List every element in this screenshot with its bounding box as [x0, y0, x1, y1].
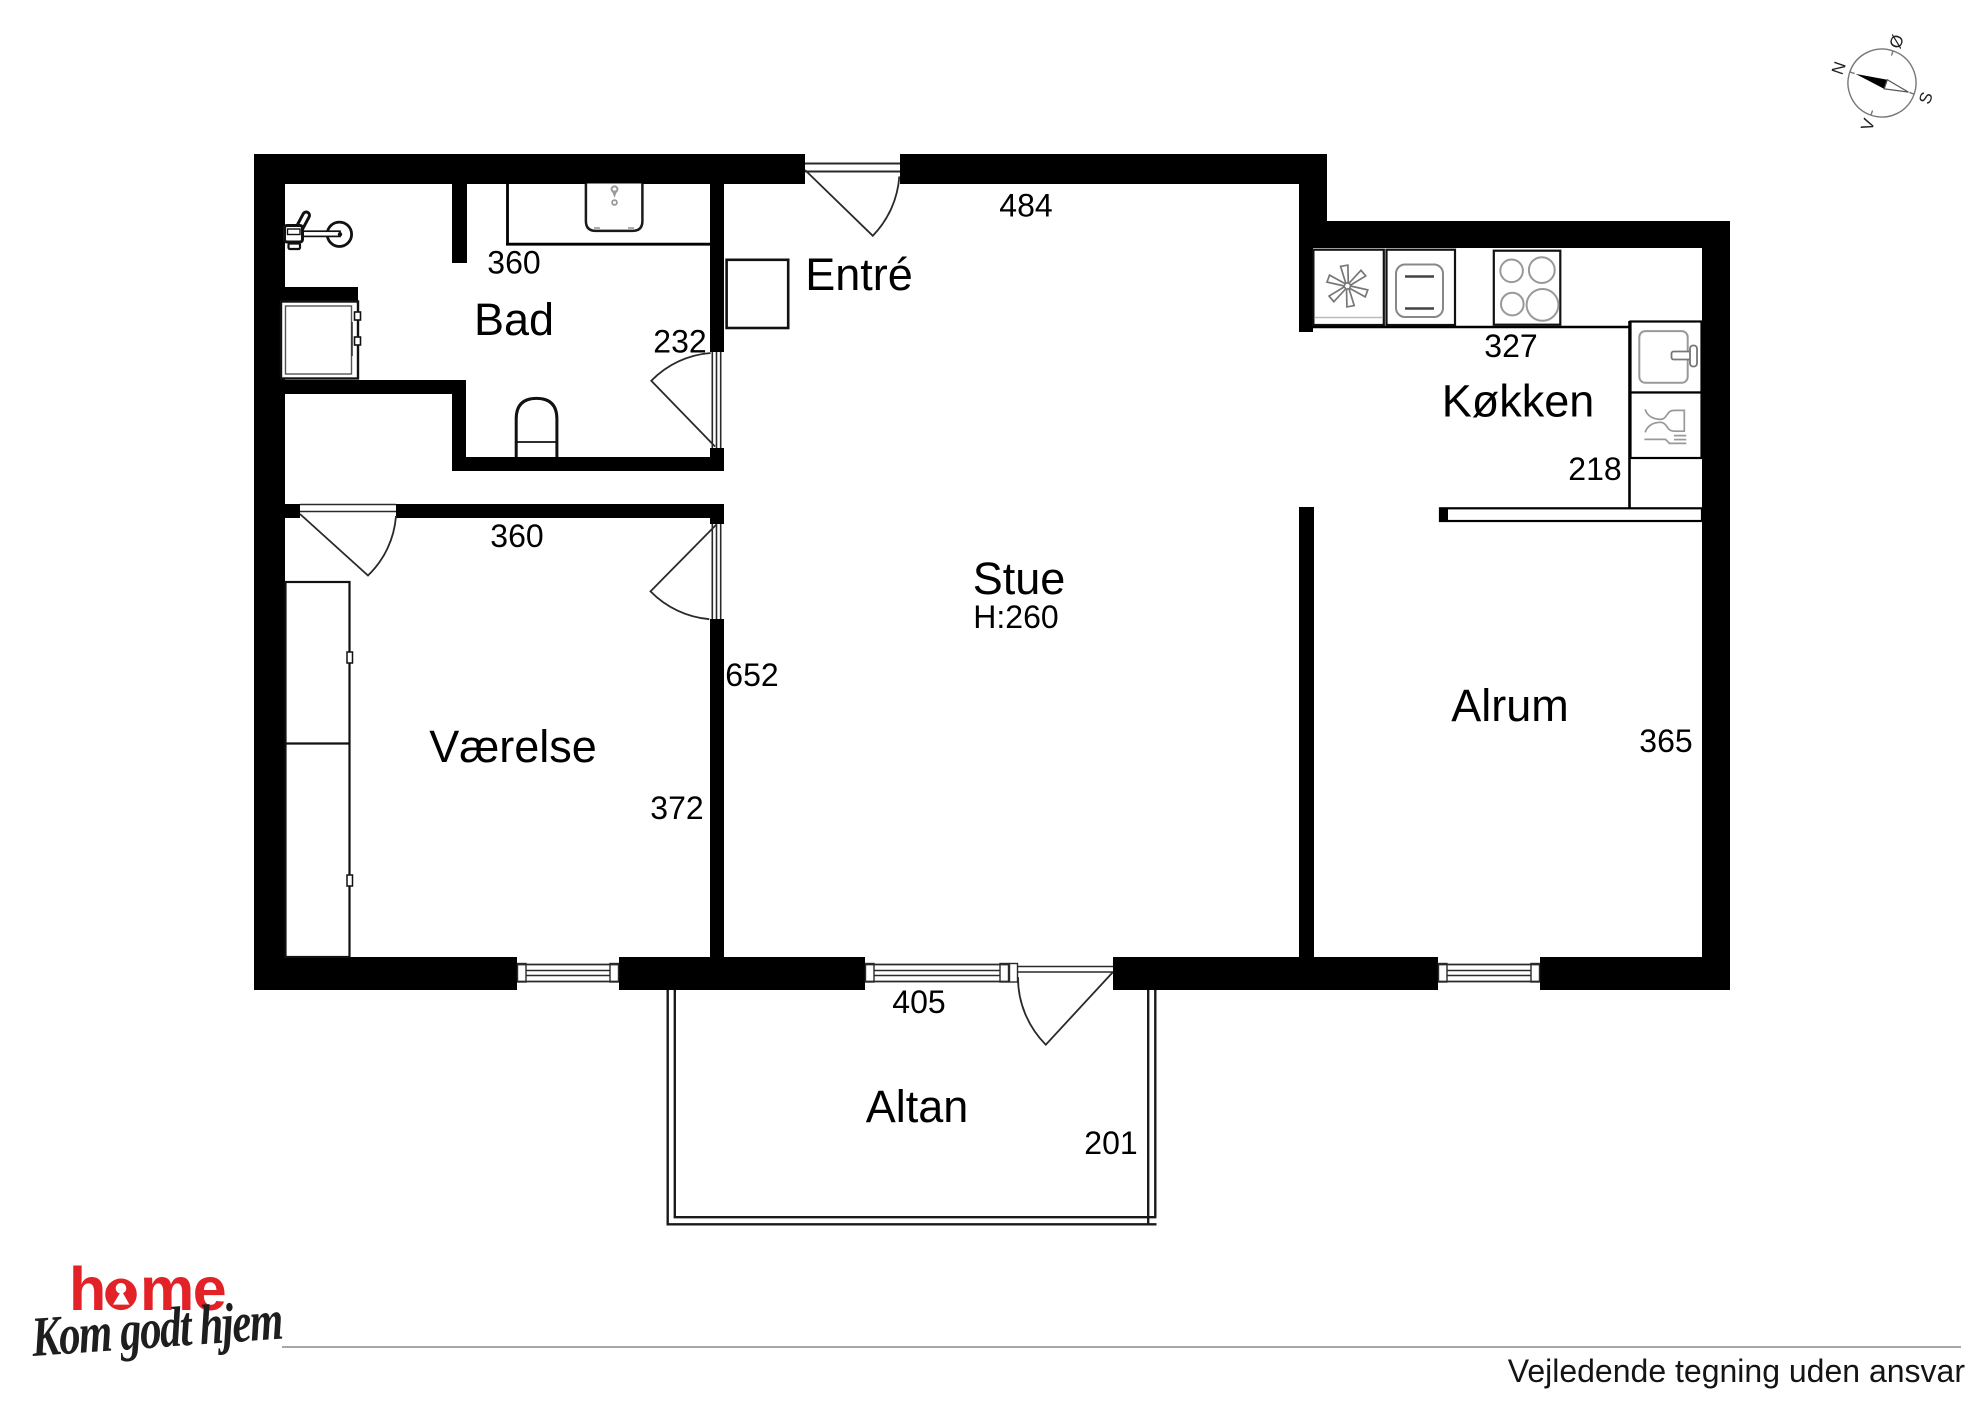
svg-text:Stue: Stue — [973, 553, 1066, 604]
svg-text:484: 484 — [999, 188, 1052, 224]
svg-text:Værelse: Værelse — [429, 721, 597, 772]
svg-text:405: 405 — [892, 984, 945, 1020]
svg-text:232: 232 — [653, 324, 706, 360]
svg-text:Altan: Altan — [866, 1081, 969, 1132]
svg-text:Entré: Entré — [805, 249, 913, 300]
svg-text:Alrum: Alrum — [1451, 680, 1569, 731]
svg-text:218: 218 — [1568, 451, 1621, 487]
svg-text:365: 365 — [1639, 723, 1692, 759]
svg-text:652: 652 — [725, 657, 778, 693]
svg-text:Køkken: Køkken — [1442, 376, 1595, 427]
svg-text:360: 360 — [487, 245, 540, 281]
svg-text:360: 360 — [490, 518, 543, 554]
svg-text:Bad: Bad — [474, 294, 554, 345]
svg-text:H:260: H:260 — [973, 599, 1058, 635]
svg-text:372: 372 — [650, 790, 703, 826]
svg-text:Vejledende tegning uden ansvar: Vejledende tegning uden ansvar — [1508, 1353, 1966, 1389]
svg-text:201: 201 — [1084, 1125, 1137, 1161]
svg-text:327: 327 — [1484, 328, 1537, 364]
